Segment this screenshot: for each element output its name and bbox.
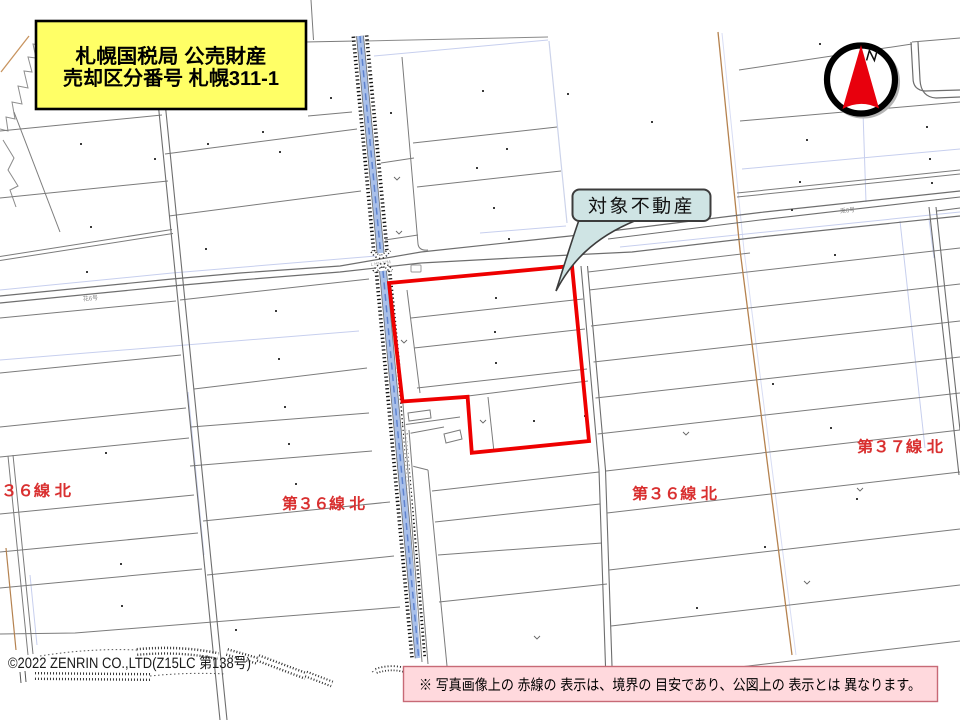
svg-text:©2022 ZENRIN CO.,LTD(Z15LC 第13: ©2022 ZENRIN CO.,LTD(Z15LC 第138号): [8, 655, 251, 672]
svg-text:売却区分番号 札幌311-1: 売却区分番号 札幌311-1: [63, 67, 279, 90]
svg-text:兎6号: 兎6号: [840, 207, 856, 215]
svg-text:３６線 北: ３６線 北: [1, 482, 72, 500]
svg-text:※ 写真画像上の 赤線の 表示は、境界の 目安であり、公図上: ※ 写真画像上の 赤線の 表示は、境界の 目安であり、公図上の 表示とは 異なり…: [419, 677, 921, 694]
svg-text:札幌国税局 公売財産: 札幌国税局 公売財産: [74, 45, 266, 68]
svg-text:第３６線 北: 第３６線 北: [282, 495, 366, 513]
svg-text:対象不動産: 対象不動産: [588, 196, 695, 218]
svg-text:第３６線 北: 第３６線 北: [632, 485, 718, 503]
svg-text:第３７線 北: 第３７線 北: [857, 438, 944, 456]
